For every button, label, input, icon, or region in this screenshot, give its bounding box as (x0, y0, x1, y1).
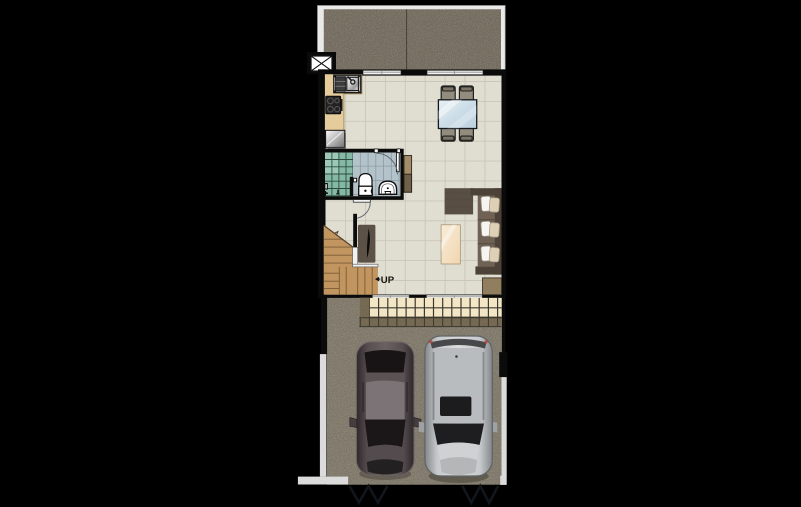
svg-text:UP: UP (381, 275, 395, 286)
